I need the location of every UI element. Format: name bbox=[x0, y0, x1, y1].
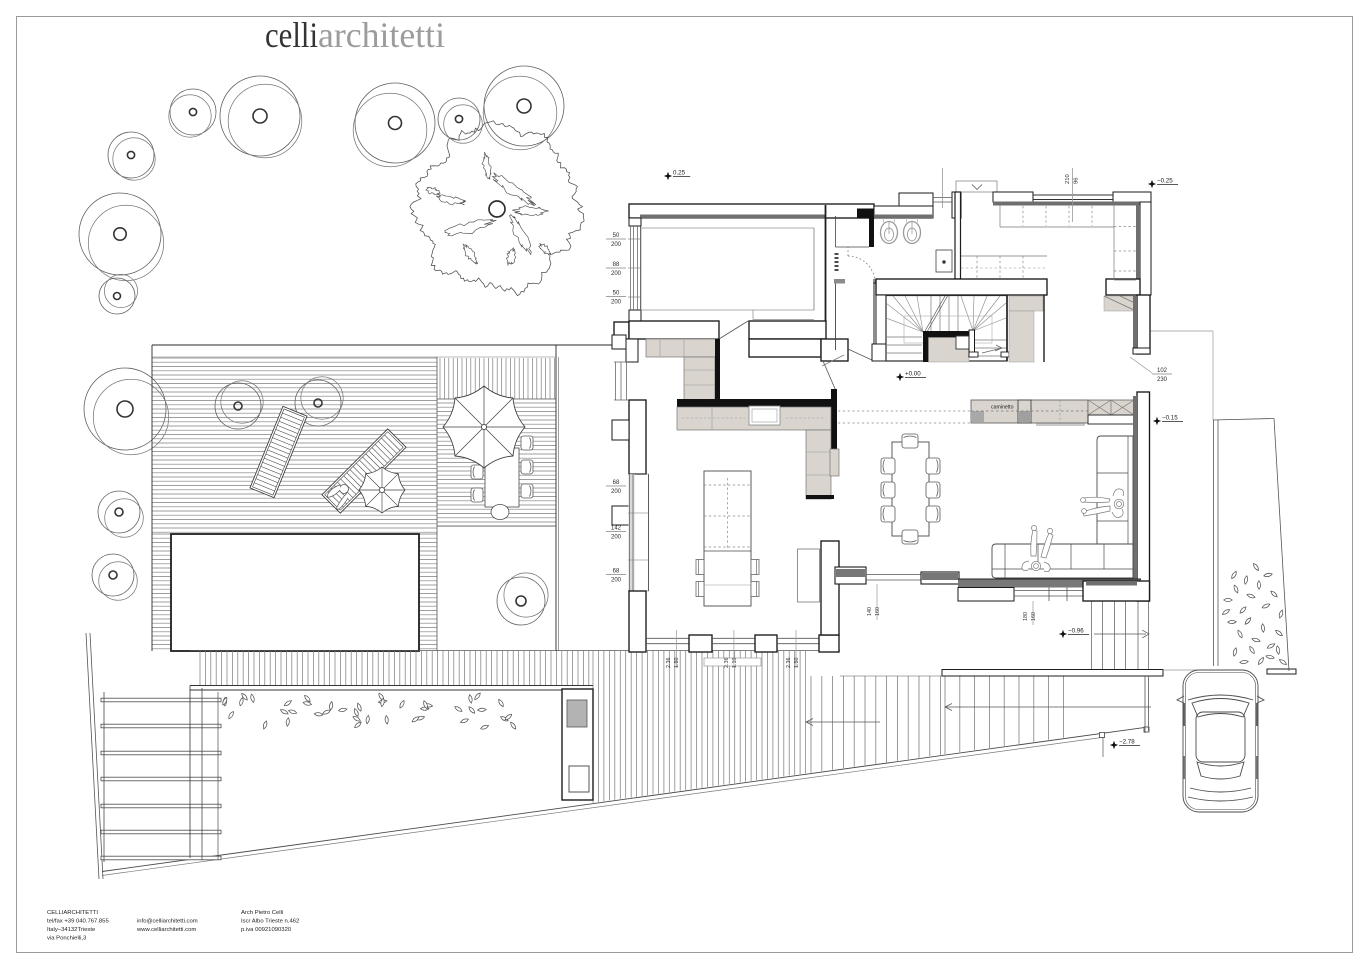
svg-text:140: 140 bbox=[867, 607, 873, 616]
svg-text:Italy–34132Trieste: Italy–34132Trieste bbox=[47, 927, 96, 933]
svg-text:68: 68 bbox=[613, 480, 620, 486]
svg-text:Arch Pietro Celli: Arch Pietro Celli bbox=[241, 910, 283, 916]
svg-text:via Ponchielli,3: via Ponchielli,3 bbox=[47, 936, 87, 942]
svg-text:tel/fax +39 040.767.855: tel/fax +39 040.767.855 bbox=[47, 919, 109, 925]
svg-text:230: 230 bbox=[1157, 377, 1168, 383]
svg-text:1.50: 1.50 bbox=[674, 658, 680, 669]
svg-text:142: 142 bbox=[611, 526, 622, 532]
svg-text:CELLIARCHITETTI: CELLIARCHITETTI bbox=[47, 910, 98, 916]
svg-text:200: 200 bbox=[611, 489, 622, 495]
svg-text:200: 200 bbox=[611, 242, 622, 248]
svg-text:−2.78: −2.78 bbox=[1119, 739, 1135, 746]
svg-text:www.celliarchitetti.com: www.celliarchitetti.com bbox=[136, 927, 196, 933]
svg-text:architetti: architetti bbox=[318, 15, 445, 55]
svg-text:p.iva 00921090320: p.iva 00921090320 bbox=[241, 927, 292, 933]
svg-text:−0.25: −0.25 bbox=[1157, 178, 1173, 185]
svg-text:102: 102 bbox=[1157, 368, 1168, 374]
svg-text:celli: celli bbox=[265, 15, 318, 55]
svg-text:2.36: 2.36 bbox=[724, 658, 730, 669]
svg-text:160: 160 bbox=[1031, 612, 1037, 621]
svg-text:Iscr Albo Trieste n.462: Iscr Albo Trieste n.462 bbox=[241, 919, 299, 925]
svg-text:88: 88 bbox=[613, 262, 620, 268]
svg-text:50: 50 bbox=[613, 233, 620, 239]
svg-text:+0.00: +0.00 bbox=[905, 371, 921, 378]
svg-text:−0.15: −0.15 bbox=[1162, 415, 1178, 422]
svg-text:info@celliarchitetti.com: info@celliarchitetti.com bbox=[137, 919, 198, 925]
svg-text:1.50: 1.50 bbox=[794, 658, 800, 669]
svg-text:1.10: 1.10 bbox=[732, 658, 738, 669]
svg-text:200: 200 bbox=[611, 300, 622, 306]
svg-text:50: 50 bbox=[613, 291, 620, 297]
svg-text:200: 200 bbox=[611, 535, 622, 541]
svg-text:2.36: 2.36 bbox=[786, 658, 792, 669]
svg-text:160: 160 bbox=[875, 607, 881, 616]
svg-text:−0.96: −0.96 bbox=[1068, 628, 1084, 635]
svg-text:210: 210 bbox=[1065, 174, 1071, 184]
svg-text:2.36: 2.36 bbox=[666, 658, 672, 669]
svg-text:0.25: 0.25 bbox=[673, 170, 686, 177]
svg-text:caminetto: caminetto bbox=[991, 405, 1014, 411]
svg-text:96: 96 bbox=[1074, 178, 1080, 184]
svg-text:180: 180 bbox=[1023, 612, 1029, 621]
svg-text:200: 200 bbox=[611, 578, 622, 584]
svg-text:68: 68 bbox=[613, 569, 620, 575]
svg-text:200: 200 bbox=[611, 271, 622, 277]
